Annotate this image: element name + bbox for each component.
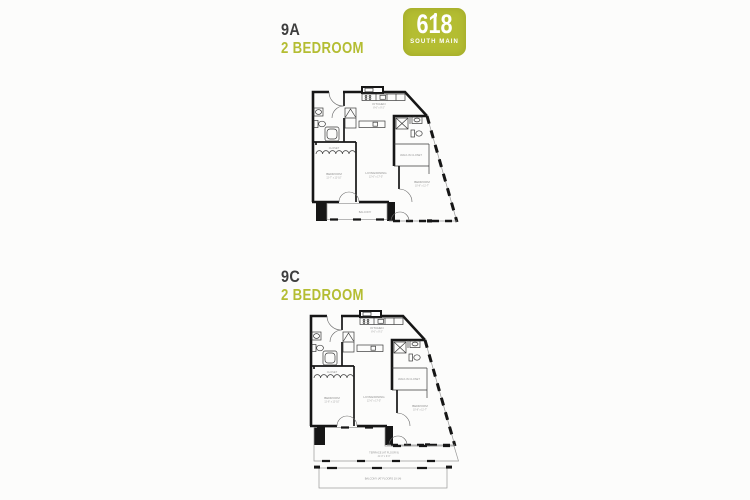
brand-logo-dot-icon (434, 13, 438, 17)
floorplan-flyer: 9A 2 BEDROOM 618 SOUTH MAIN (0, 0, 750, 500)
closet-label: CLOSET (327, 370, 338, 374)
living-dims: 12'-6" x 17'-5" (369, 177, 383, 179)
living-dims: 12'-6" x 17'-5" (367, 401, 381, 403)
bedroom2-dims: 10'-8" x 11'-7" (413, 410, 427, 412)
plan-9c-unit-type: 2 BEDROOM (281, 288, 364, 304)
bedroom1-dims: 11'-6" x 12'-10" (324, 402, 339, 404)
brand-logo-name: SOUTH MAIN (404, 38, 464, 45)
kitchen-dims: 8'-6" x 9'-2" (373, 108, 385, 110)
kitchen-label: KITCHEN (370, 326, 383, 330)
plan-9a-unit-type: 2 BEDROOM (281, 41, 364, 57)
plan-9a-header: 9A 2 BEDROOM (281, 21, 378, 57)
plan-9a-unit-code: 9A (281, 21, 364, 38)
bedroom2-label: BEDROOM (412, 404, 428, 408)
brand-logo: 618 SOUTH MAIN (403, 8, 466, 56)
terrace-dims: 41'-0" x 9'-6" (378, 456, 391, 458)
floorplan-9a: KITCHEN 8'-6" x 9'-2" CLOSET BEDROOM 11'… (299, 86, 465, 226)
balcony-9a (327, 204, 387, 220)
living-label: LIVING/DINING (363, 395, 385, 399)
bedroom1-label: BEDROOM (324, 396, 340, 400)
plan-9c-header: 9C 2 BEDROOM (281, 268, 378, 304)
floorplan-9c: TERRACE (AT FLOOR 9) 41'-0" x 9'-6" BALC… (297, 310, 467, 496)
bedroom1-label: BEDROOM (326, 172, 342, 176)
balcony-9c: BALCONY (AT FLOORS 10-14) (314, 466, 452, 488)
bedroom1-dims: 11'-7" x 12'-10" (326, 178, 341, 180)
walkin-label: WALK-IN CLOSET (398, 377, 420, 381)
plan-9c-unit-code: 9C (281, 268, 364, 285)
bedroom2-label: BEDROOM (414, 180, 430, 184)
walkin-label: WALK-IN CLOSET (400, 153, 422, 157)
closet-label: CLOSET (329, 146, 340, 150)
terrace-label: TERRACE (AT FLOOR 9) (369, 451, 399, 455)
balcony-label: BALCONY (359, 210, 372, 214)
living-label: LIVING/DINING (365, 171, 387, 175)
kitchen-dims: 8'-6" x 9'-2" (371, 332, 383, 334)
kitchen-label: KITCHEN (372, 102, 385, 106)
bedroom2-dims: 10'-8" x 11'-7" (415, 186, 429, 188)
balcony-label: BALCONY (AT FLOORS 10-14) (365, 477, 402, 481)
